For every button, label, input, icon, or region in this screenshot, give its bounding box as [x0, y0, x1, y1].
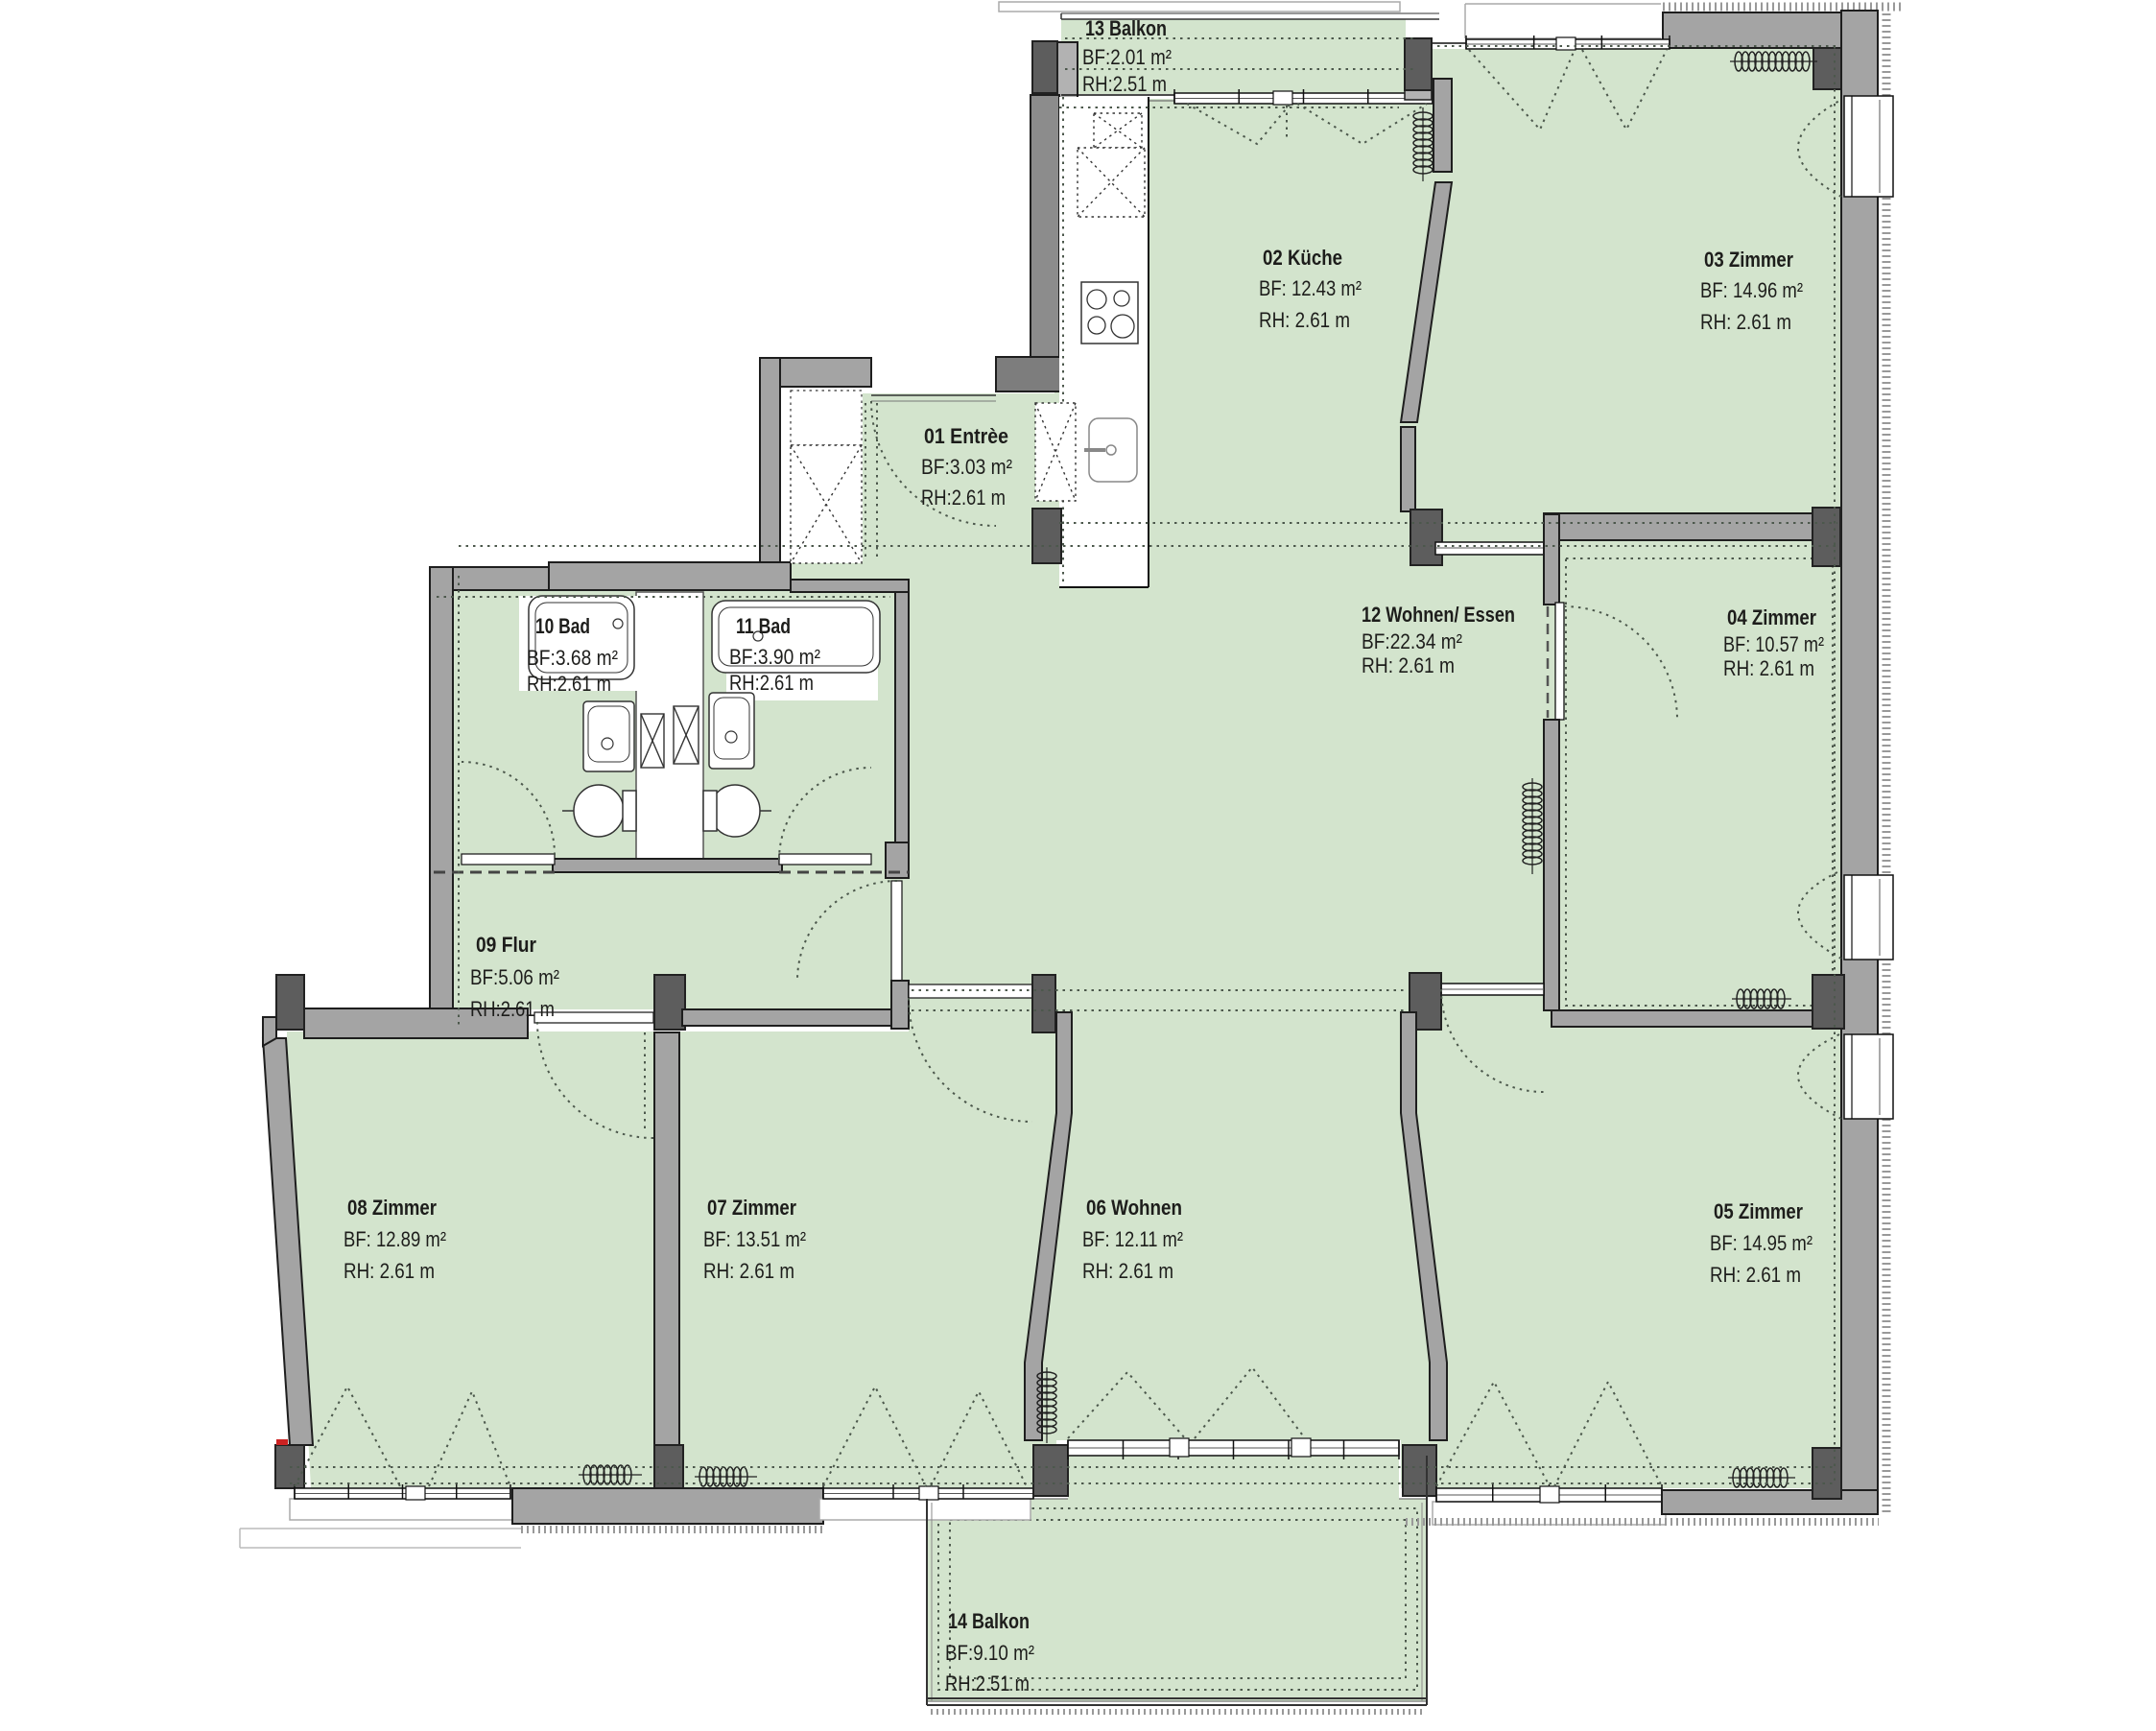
svg-text:04 Zimmer: 04 Zimmer: [1727, 605, 1816, 629]
svg-text:RH:2.51 m: RH:2.51 m: [945, 1672, 1030, 1695]
svg-text:BF: 14.96 m²: BF: 14.96 m²: [1700, 278, 1803, 302]
svg-text:BF:22.34 m²: BF:22.34 m²: [1362, 629, 1462, 653]
svg-text:14 Balkon: 14 Balkon: [948, 1609, 1030, 1633]
svg-text:07 Zimmer: 07 Zimmer: [707, 1196, 796, 1220]
svg-text:BF:3.03 m²: BF:3.03 m²: [921, 455, 1012, 479]
svg-text:RH: 2.61 m: RH: 2.61 m: [703, 1259, 794, 1283]
svg-text:RH: 2.61 m: RH: 2.61 m: [1700, 310, 1791, 334]
svg-text:05 Zimmer: 05 Zimmer: [1714, 1199, 1803, 1223]
svg-text:06 Wohnen: 06 Wohnen: [1086, 1196, 1182, 1220]
svg-text:RH: 2.61 m: RH: 2.61 m: [1082, 1259, 1173, 1283]
svg-text:02 Küche: 02 Küche: [1263, 246, 1342, 270]
svg-text:03 Zimmer: 03 Zimmer: [1704, 248, 1793, 272]
svg-text:BF:2.01 m²: BF:2.01 m²: [1082, 45, 1172, 69]
svg-text:RH: 2.61 m: RH: 2.61 m: [1259, 308, 1350, 332]
svg-text:12 Wohnen/ Essen: 12 Wohnen/ Essen: [1362, 603, 1515, 627]
svg-text:BF:3.90 m²: BF:3.90 m²: [729, 645, 820, 669]
svg-text:BF: 13.51 m²: BF: 13.51 m²: [703, 1227, 806, 1251]
svg-text:RH:2.61 m: RH:2.61 m: [470, 997, 555, 1021]
svg-text:13 Balkon: 13 Balkon: [1085, 16, 1167, 40]
svg-text:BF: 14.95 m²: BF: 14.95 m²: [1710, 1231, 1812, 1255]
svg-text:BF: 12.43 m²: BF: 12.43 m²: [1259, 276, 1362, 300]
svg-text:RH: 2.61 m: RH: 2.61 m: [1723, 656, 1814, 680]
svg-text:BF: 12.11 m²: BF: 12.11 m²: [1082, 1227, 1183, 1251]
svg-text:RH:2.51 m: RH:2.51 m: [1082, 72, 1167, 96]
svg-text:11 Bad: 11 Bad: [736, 614, 791, 638]
svg-text:RH: 2.61 m: RH: 2.61 m: [344, 1259, 435, 1283]
svg-text:08 Zimmer: 08 Zimmer: [347, 1196, 437, 1220]
svg-text:RH:2.61 m: RH:2.61 m: [729, 671, 814, 695]
svg-text:10 Bad: 10 Bad: [535, 614, 590, 638]
svg-text:BF:5.06 m²: BF:5.06 m²: [470, 965, 559, 989]
svg-text:BF: 12.89 m²: BF: 12.89 m²: [344, 1227, 446, 1251]
svg-text:09 Flur: 09 Flur: [476, 933, 536, 957]
svg-text:RH: 2.61 m: RH: 2.61 m: [1710, 1263, 1801, 1287]
svg-text:RH: 2.61 m: RH: 2.61 m: [1362, 653, 1455, 677]
svg-text:BF: 10.57 m²: BF: 10.57 m²: [1723, 632, 1824, 656]
svg-text:RH:2.61 m: RH:2.61 m: [921, 486, 1006, 510]
svg-text:RH:2.61 m: RH:2.61 m: [527, 672, 611, 696]
svg-text:01 Entrèe: 01 Entrèe: [924, 424, 1008, 448]
svg-text:BF:9.10 m²: BF:9.10 m²: [945, 1641, 1034, 1665]
svg-text:BF:3.68 m²: BF:3.68 m²: [527, 646, 618, 670]
